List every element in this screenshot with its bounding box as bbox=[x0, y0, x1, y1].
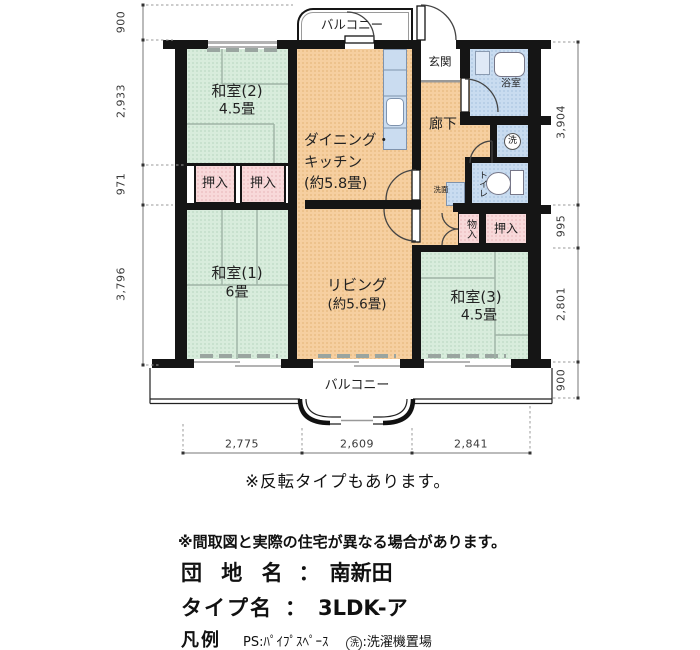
window-sill-dashes bbox=[200, 354, 278, 358]
dim-left-3796: 3,796 bbox=[115, 267, 128, 301]
wall bbox=[511, 359, 541, 368]
wall bbox=[453, 203, 541, 212]
dk-line2: キッチン bbox=[304, 153, 391, 175]
door-gap-genkan bbox=[421, 40, 456, 49]
window-sill-dashes bbox=[428, 354, 506, 358]
estate-name-row: 団 地 名 ： 南新田 bbox=[181, 557, 393, 587]
washer-icon: 洗 bbox=[504, 133, 521, 150]
door-gap-living bbox=[412, 209, 421, 245]
balcony-bottom-outline bbox=[150, 368, 552, 424]
wall bbox=[412, 49, 421, 170]
genkan-label: 玄関 bbox=[429, 56, 452, 69]
wall bbox=[460, 116, 528, 125]
rouka-label: 廊下 bbox=[429, 117, 457, 132]
toilet-tank bbox=[510, 170, 524, 195]
dk-label: ダイニング・ キッチン (約5.8畳) bbox=[304, 131, 391, 196]
door-gap-balcony bbox=[345, 40, 374, 49]
oshiire-a-label: 押入 bbox=[202, 177, 228, 191]
window-living bbox=[313, 361, 359, 363]
washitsu1-name: 和室(1) bbox=[211, 265, 262, 282]
wall bbox=[400, 359, 424, 368]
dim-bottom-2841: 2,841 bbox=[454, 438, 488, 451]
floorplan-page: 洗 bbox=[0, 0, 700, 650]
type-value: 3LDK-ア bbox=[318, 592, 408, 622]
estate-separator: ： bbox=[299, 557, 320, 587]
wall bbox=[412, 245, 541, 252]
door-gap-dk bbox=[412, 170, 421, 200]
wall bbox=[412, 200, 421, 209]
wall bbox=[152, 359, 194, 368]
wall bbox=[175, 40, 187, 359]
washitsu1-size: 6畳 bbox=[226, 285, 249, 300]
wall bbox=[481, 212, 484, 245]
window-washitsu1 bbox=[194, 361, 240, 363]
note-disclaimer: ※間取図と実際の住宅が異なる場合があります。 bbox=[178, 531, 506, 552]
estate-label: 団 地 名 bbox=[181, 557, 289, 587]
dim-right-900: 900 bbox=[555, 369, 568, 392]
window-washitsu1 bbox=[235, 365, 281, 367]
window-sill-dashes bbox=[318, 354, 396, 358]
dim-left-971: 971 bbox=[115, 173, 128, 196]
bathtub bbox=[494, 52, 525, 77]
dim-right-3904: 3,904 bbox=[555, 105, 568, 139]
legend-ps: PS:ﾊﾟｲﾌﾟｽﾍﾟｰｽ bbox=[243, 631, 328, 650]
balcony-top-label: バルコニー bbox=[321, 18, 383, 32]
dim-bottom-2775: 2,775 bbox=[225, 438, 259, 451]
wall bbox=[541, 116, 551, 125]
balcony-gate-gap bbox=[341, 415, 373, 426]
dim-left-2933: 2,933 bbox=[115, 84, 128, 118]
legend-title: 凡例 bbox=[181, 626, 221, 650]
wall bbox=[281, 359, 313, 368]
toilet-label: トイレ bbox=[476, 171, 486, 198]
wall bbox=[175, 203, 297, 210]
washitsu3-size: 4.5畳 bbox=[461, 308, 497, 323]
wall bbox=[541, 359, 551, 368]
wall bbox=[541, 205, 551, 214]
wall bbox=[412, 245, 421, 359]
balcony-bump-arcs bbox=[300, 399, 413, 423]
washitsu3-name: 和室(3) bbox=[450, 289, 501, 306]
window-washitsu3 bbox=[465, 365, 511, 367]
dim-right-2801: 2,801 bbox=[555, 287, 568, 321]
estate-value: 南新田 bbox=[330, 557, 393, 587]
oshiire-c-label: 押入 bbox=[494, 222, 518, 235]
living-name: リビング bbox=[327, 277, 387, 294]
yokushitsu-label: 浴室 bbox=[501, 79, 521, 90]
legend-row: 凡例 PS:ﾊﾟｲﾌﾟｽﾍﾟｰｽ 洗 :洗濯機置場 bbox=[181, 626, 432, 650]
dk-line1: ダイニング・ bbox=[304, 131, 391, 153]
dim-right-995: 995 bbox=[555, 215, 568, 238]
dim-bottom-2609: 2,609 bbox=[340, 438, 374, 451]
wall bbox=[187, 163, 288, 166]
window-washitsu3 bbox=[424, 361, 470, 363]
bath-cabinet bbox=[475, 51, 490, 75]
washer-mark-label: 洗 bbox=[508, 136, 517, 146]
living-size: (約5.6畳) bbox=[327, 298, 386, 313]
washitsu2-size: 4.5畳 bbox=[219, 102, 255, 117]
oshiire-b-label: 押入 bbox=[250, 177, 276, 191]
washitsu2-name: 和室(2) bbox=[211, 83, 262, 100]
legend-washer-icon: 洗 bbox=[346, 636, 362, 650]
type-separator: ： bbox=[285, 592, 306, 622]
balcony-bottom-label: バルコニー bbox=[325, 379, 390, 393]
room-washitsu1-floor bbox=[187, 206, 288, 359]
wall bbox=[460, 49, 470, 78]
legend-washer-text: :洗濯機置場 bbox=[362, 631, 431, 650]
dim-left-900: 900 bbox=[115, 11, 128, 34]
monoire-label: 物入 bbox=[465, 219, 476, 239]
dk-line3: (約5.8畳) bbox=[304, 174, 391, 196]
wall bbox=[305, 200, 412, 209]
type-label: タイプ名 bbox=[181, 592, 273, 622]
toilet-bowl bbox=[486, 172, 511, 195]
kitchen-sink bbox=[386, 98, 404, 126]
wall bbox=[541, 40, 551, 49]
type-name-row: タイプ名 ： 3LDK-ア bbox=[181, 592, 408, 622]
wall bbox=[277, 40, 345, 49]
window-living bbox=[354, 365, 400, 367]
window-sill-dashes bbox=[207, 48, 277, 52]
senmen-label: 洗面 bbox=[434, 186, 449, 194]
window-washitsu2-top bbox=[208, 41, 277, 44]
wall bbox=[465, 157, 528, 163]
wall bbox=[374, 40, 421, 49]
note-flip: ※反転タイプもあります。 bbox=[245, 468, 451, 492]
